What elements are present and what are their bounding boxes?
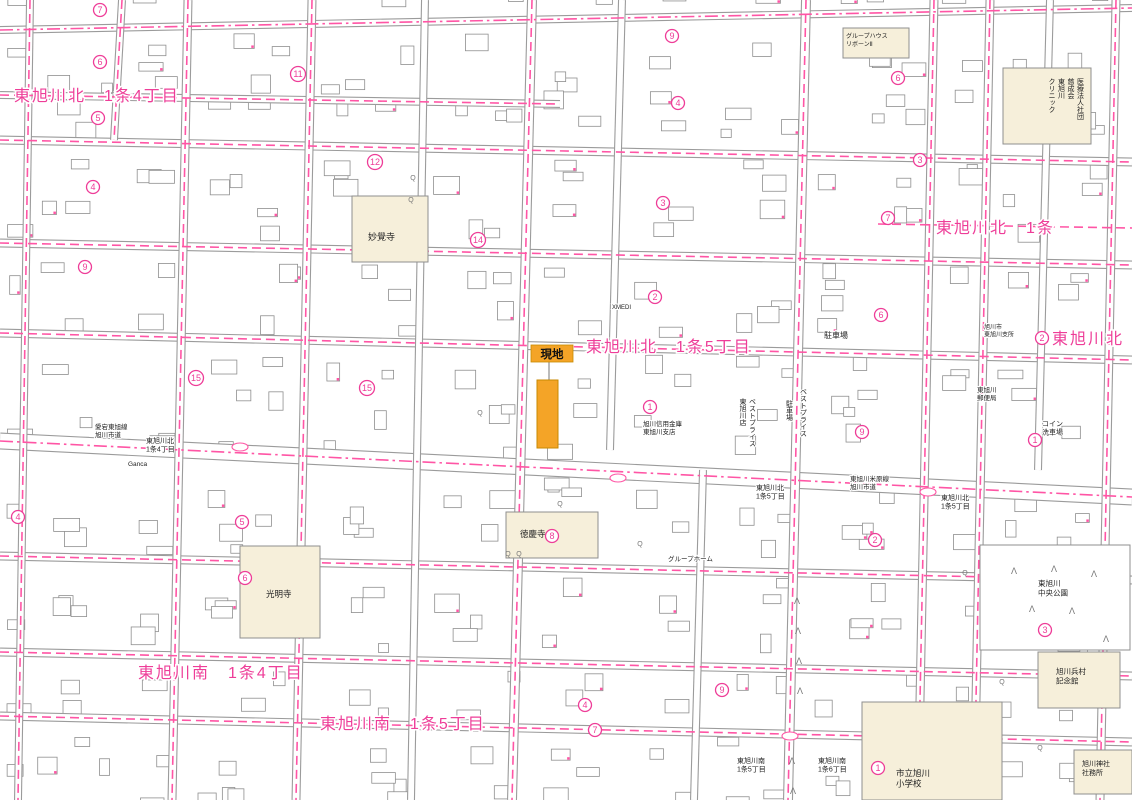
building	[778, 514, 791, 522]
building	[815, 700, 832, 717]
tree-symbol: Q	[962, 570, 968, 577]
conifer-tree-symbol: Λ	[1069, 606, 1075, 616]
building	[661, 121, 685, 131]
building	[1012, 388, 1037, 400]
circled-number-value: 2	[1039, 333, 1044, 343]
landmark-name: 中央公園	[1038, 588, 1068, 598]
building	[453, 629, 477, 642]
building	[139, 63, 163, 72]
building	[378, 644, 388, 653]
building	[577, 768, 600, 777]
poi-label: 1条5丁目	[941, 502, 970, 511]
building	[872, 114, 884, 123]
route-badge	[232, 443, 248, 451]
poi-label: 洗車場	[1042, 428, 1063, 437]
circled-number-value: 6	[895, 73, 900, 83]
conifer-tree-symbol: Λ	[1091, 569, 1097, 579]
lot-number-mark	[553, 645, 556, 648]
conifer-tree-symbol: Λ	[795, 626, 801, 636]
lot-number-mark	[573, 168, 576, 171]
circled-number: 7	[94, 4, 107, 17]
route-badge	[610, 474, 626, 482]
building	[761, 540, 775, 557]
circled-number: 1	[644, 401, 657, 414]
landmark-name: 東旭川	[1058, 77, 1066, 99]
building	[579, 116, 601, 126]
circled-number-value: 3	[917, 155, 922, 165]
building	[668, 621, 689, 631]
lot-number-mark	[679, 334, 682, 337]
landmark-name: 小学校	[896, 779, 922, 789]
circled-number-value: 12	[370, 157, 380, 167]
building	[744, 160, 763, 169]
tree-symbol: Q	[408, 197, 414, 204]
building	[1008, 272, 1028, 288]
building	[721, 129, 731, 137]
circled-number: 9	[666, 30, 679, 43]
lot-number-mark	[573, 214, 576, 217]
building	[880, 492, 895, 503]
poi-label: グループホーム	[668, 554, 713, 563]
building	[757, 410, 777, 421]
building	[61, 680, 79, 694]
circled-number-value: 15	[362, 383, 372, 393]
landmark-name: 市立旭川	[896, 768, 930, 778]
building	[1060, 710, 1073, 720]
poi-label: ベストプライス	[800, 388, 808, 437]
circled-number: 9	[856, 426, 869, 439]
building	[351, 598, 362, 613]
circled-number-value: 4	[582, 700, 587, 710]
circled-number-value: 9	[82, 262, 87, 272]
conifer-tree-symbol: Λ	[1051, 564, 1057, 574]
building	[659, 327, 682, 337]
building	[760, 634, 771, 653]
route-badge	[782, 732, 798, 740]
building	[75, 737, 90, 746]
lot-number-mark	[222, 504, 225, 507]
lot-number-mark	[233, 606, 236, 609]
circled-number-value: 7	[592, 725, 597, 735]
building	[1068, 53, 1082, 69]
circled-number-value: 6	[242, 573, 247, 583]
poi-label: 郵便局	[977, 393, 997, 402]
building	[71, 606, 87, 617]
lot-number-mark	[457, 191, 460, 194]
poi-label: 東旭川北	[941, 493, 969, 502]
building	[942, 0, 965, 3]
building	[851, 619, 873, 628]
circled-number: 6	[892, 72, 905, 85]
building	[943, 376, 966, 391]
building	[42, 365, 68, 375]
lot-number-mark	[870, 531, 873, 534]
circled-number-value: 4	[675, 98, 680, 108]
building	[665, 699, 689, 712]
building	[726, 108, 752, 120]
lot-number-mark	[832, 187, 835, 190]
district-label: 東旭川南 1条5丁目	[320, 715, 486, 733]
lot-number-mark	[337, 378, 340, 381]
poi-label: 東旭川支店	[643, 427, 676, 436]
lot-number-mark	[923, 73, 926, 76]
circled-number-value: 5	[95, 113, 100, 123]
building	[650, 92, 671, 104]
building	[149, 170, 175, 183]
lot-number-mark	[668, 101, 671, 104]
building	[574, 404, 597, 418]
building	[481, 525, 498, 542]
tree-symbol: Q	[999, 679, 1005, 686]
lot-number-mark	[567, 757, 570, 760]
building	[663, 0, 686, 1]
lot-number-mark	[1099, 192, 1102, 195]
circled-number-value: 4	[15, 512, 20, 522]
circled-number: 15	[189, 371, 204, 386]
poi-label: 駐車場	[824, 330, 848, 340]
building	[269, 392, 283, 410]
poi-label: 1条4丁目	[146, 445, 175, 454]
lot-number-mark	[1034, 398, 1037, 401]
building	[953, 535, 975, 550]
building	[158, 263, 174, 277]
building	[389, 289, 411, 300]
conifer-tree-symbol: Λ	[789, 756, 795, 766]
circled-number: 4	[672, 97, 685, 110]
building	[372, 773, 396, 784]
landmark-name: 記念館	[1056, 676, 1079, 686]
landmark-name: 旭川神社	[1082, 759, 1110, 768]
lot-number-mark	[1026, 285, 1029, 288]
poi-label: Ganca	[128, 461, 148, 468]
lot-number-mark	[1085, 279, 1088, 282]
lot-number-mark	[881, 546, 884, 549]
building	[350, 507, 363, 524]
building	[370, 749, 386, 762]
building	[578, 379, 590, 388]
landmark-name: 社務所	[1082, 768, 1103, 777]
building	[906, 109, 925, 124]
building	[261, 316, 275, 335]
building	[53, 598, 70, 616]
building	[867, 0, 883, 2]
building	[737, 314, 752, 333]
poi-label: 旭川市	[984, 323, 1002, 331]
lot-number-mark	[53, 212, 56, 215]
circled-number: 9	[79, 261, 92, 274]
building	[147, 546, 173, 554]
building	[219, 761, 236, 775]
building	[234, 34, 254, 49]
circled-number-value: 1	[875, 763, 880, 773]
lot-number-mark	[782, 216, 785, 219]
building	[382, 0, 406, 7]
poi-label: 旭川市道	[95, 430, 122, 439]
circled-number: 7	[882, 212, 895, 225]
landmark-name: グループハウス	[846, 32, 888, 40]
tree-symbol: Q	[516, 551, 522, 558]
circled-number: 2	[1036, 332, 1049, 345]
lot-number-mark	[870, 625, 873, 628]
poi-label: 1条6丁目	[818, 765, 847, 774]
building	[823, 264, 836, 279]
building	[211, 606, 232, 618]
circled-number-value: 6	[97, 57, 102, 67]
building	[71, 159, 89, 168]
building	[501, 405, 515, 414]
lot-number-mark	[456, 609, 459, 612]
building	[155, 77, 177, 89]
building	[763, 595, 781, 604]
building	[654, 223, 674, 237]
landmark-name: 光明寺	[266, 589, 292, 599]
building	[363, 587, 384, 597]
circled-number: 3	[657, 197, 670, 210]
landmark-name: 医療法人社団	[1077, 78, 1085, 121]
circled-number: 9	[716, 684, 729, 697]
building	[375, 411, 387, 430]
district-label: 東旭川北 1条4丁目	[14, 87, 180, 105]
landmark-name: 妙覺寺	[368, 231, 395, 242]
circled-number: 5	[92, 112, 105, 125]
poi-label: 東旭川米原線	[850, 474, 890, 483]
lot-number-mark	[777, 0, 780, 3]
heison-memorial-hall	[1038, 652, 1120, 708]
building	[836, 781, 850, 796]
building	[362, 265, 378, 279]
circled-number: 4	[87, 181, 100, 194]
building	[822, 296, 843, 311]
circled-number-value: 14	[473, 235, 483, 245]
building	[563, 172, 583, 181]
building	[251, 75, 270, 93]
building	[80, 418, 92, 428]
circled-number-value: 3	[1042, 625, 1047, 635]
building	[210, 180, 229, 195]
map-canvas[interactable]: 妙覺寺医療法人社団慈成会東旭川クリニック徳慶寺光明寺市立旭川小学校旭川兵村記念館…	[0, 0, 1132, 800]
building	[468, 271, 486, 288]
building	[272, 47, 289, 56]
circled-number: 8	[546, 530, 559, 543]
circled-number: 1	[1029, 434, 1042, 447]
boundary-line	[0, 8, 1132, 30]
landmark-name: 東旭川	[1038, 578, 1061, 588]
building	[544, 268, 564, 277]
building	[131, 627, 155, 645]
poi-label: 東旭川支所	[984, 331, 1014, 339]
lot-number-mark	[796, 131, 799, 134]
lot-number-mark	[919, 219, 922, 222]
poi-label: 東旭川店	[739, 397, 747, 427]
circled-number: 1	[872, 762, 885, 775]
building	[212, 360, 237, 374]
building	[434, 176, 460, 194]
asahikawa-elementary-school	[862, 702, 1002, 800]
building	[241, 698, 265, 711]
building	[399, 326, 417, 336]
conifer-tree-symbol: Λ	[1103, 634, 1109, 644]
lot-number-mark	[275, 214, 278, 217]
circled-number-value: 2	[872, 535, 877, 545]
building	[650, 57, 671, 69]
building	[999, 762, 1022, 777]
site-label: 現地	[541, 347, 564, 361]
building	[844, 407, 855, 416]
building	[263, 358, 283, 367]
poi-label: ベストプライス	[749, 398, 757, 447]
circled-number-value: 9	[859, 427, 864, 437]
building	[435, 594, 460, 612]
landmark-name: 慈成会	[1067, 77, 1075, 100]
route-badge	[920, 488, 936, 496]
poi-label: 愛宕東旭線	[95, 422, 128, 431]
building	[455, 370, 476, 389]
building	[1006, 521, 1016, 538]
building	[675, 374, 691, 386]
building	[230, 174, 242, 187]
lot-number-mark	[54, 771, 57, 774]
building	[760, 200, 785, 219]
building	[66, 201, 90, 213]
circled-number: 6	[239, 572, 252, 585]
building	[555, 160, 576, 171]
district-label: 東旭川南 1条4丁目	[138, 664, 304, 682]
district-label: 東旭川北	[1052, 330, 1124, 348]
building	[650, 749, 664, 760]
poi-label: コイン	[1042, 420, 1063, 428]
conifer-tree-symbol: Λ	[797, 686, 803, 696]
building	[1003, 195, 1014, 207]
conifer-tree-symbol: Λ	[1011, 566, 1017, 576]
lot-number-mark	[17, 291, 20, 294]
road-surface	[411, 0, 425, 800]
building	[902, 63, 926, 77]
building	[998, 370, 1023, 379]
building	[260, 226, 279, 241]
circled-number-value: 6	[878, 310, 883, 320]
building	[345, 80, 364, 90]
circled-number-value: 15	[191, 373, 201, 383]
building	[962, 61, 982, 72]
lot-number-mark	[745, 687, 748, 690]
building	[228, 789, 244, 800]
landmark-name: 徳慶寺	[520, 529, 546, 539]
circled-number-value: 9	[669, 31, 674, 41]
lot-number-mark	[251, 45, 254, 48]
circled-number: 2	[869, 534, 882, 547]
building	[149, 45, 166, 56]
lot-number-mark	[160, 68, 163, 71]
site-layer: 現地	[531, 345, 573, 448]
building	[8, 0, 27, 5]
circled-number-value: 5	[239, 517, 244, 527]
building	[324, 161, 350, 176]
building	[490, 491, 516, 509]
circled-number-value: 8	[549, 531, 554, 541]
circled-number-value: 2	[652, 292, 657, 302]
circled-number-value: 3	[660, 198, 665, 208]
conifer-tree-symbol: Λ	[790, 786, 796, 796]
building	[139, 520, 157, 533]
lot-number-mark	[673, 610, 676, 613]
tree-symbol: Q	[410, 175, 416, 182]
circled-number: 6	[94, 56, 107, 69]
building	[444, 496, 461, 508]
building	[553, 205, 576, 217]
building	[493, 273, 511, 284]
building	[198, 793, 216, 800]
building	[636, 490, 657, 508]
building	[484, 228, 499, 238]
building	[753, 43, 771, 56]
building	[471, 747, 493, 764]
building	[555, 72, 566, 82]
building	[959, 169, 983, 185]
landmark-name: 旭川兵村	[1056, 666, 1086, 676]
building	[100, 759, 110, 776]
building	[562, 488, 582, 497]
tree-symbol: Q	[1037, 745, 1043, 752]
building	[41, 263, 64, 273]
poi-label: 東旭川北	[756, 483, 784, 492]
road-surface	[610, 0, 622, 450]
lot-number-mark	[510, 317, 513, 320]
poi-label: XMEDI	[612, 305, 631, 311]
building	[740, 508, 754, 525]
building	[886, 95, 905, 107]
circled-number: 4	[579, 699, 592, 712]
circled-number: 14	[471, 233, 486, 248]
lot-number-mark	[854, 1, 857, 4]
landmark-name: クリニック	[1048, 78, 1056, 113]
boundary-line	[18, 0, 30, 800]
circled-number-value: 7	[97, 5, 102, 15]
building	[871, 583, 885, 601]
district-label: 東旭川北 1条5丁目	[586, 338, 752, 356]
poi-label: 東旭川	[977, 385, 997, 394]
building	[578, 321, 601, 335]
circled-number: 15	[360, 381, 375, 396]
circled-number-value: 1	[1032, 435, 1037, 445]
circled-number-value: 9	[719, 685, 724, 695]
building	[509, 0, 524, 2]
building	[646, 355, 663, 373]
building	[1062, 426, 1080, 438]
building	[237, 390, 251, 401]
building	[321, 85, 339, 94]
building	[955, 90, 973, 102]
circled-number: 5	[236, 516, 249, 529]
poi-label: 東旭川北	[146, 436, 174, 445]
tree-symbol: Q	[477, 410, 483, 417]
residential-map: 妙覺寺医療法人社団慈成会東旭川クリニック徳慶寺光明寺市立旭川小学校旭川兵村記念館…	[0, 0, 1132, 800]
circled-number-value: 7	[885, 213, 890, 223]
circled-number-value: 1	[647, 402, 652, 412]
building	[349, 690, 370, 705]
poi-label: 東旭川南	[818, 756, 846, 765]
circled-number: 11	[291, 67, 306, 82]
circled-number: 3	[914, 154, 927, 167]
tree-symbol: Q	[505, 551, 511, 558]
poi-label: 1条5丁目	[756, 492, 785, 501]
building	[138, 314, 163, 330]
building	[956, 687, 968, 701]
myokakuji-temple	[352, 196, 428, 262]
building	[54, 518, 80, 531]
building	[507, 109, 522, 122]
site-parcel-highlight	[537, 380, 558, 448]
poi-label: 東旭川南	[737, 756, 765, 765]
